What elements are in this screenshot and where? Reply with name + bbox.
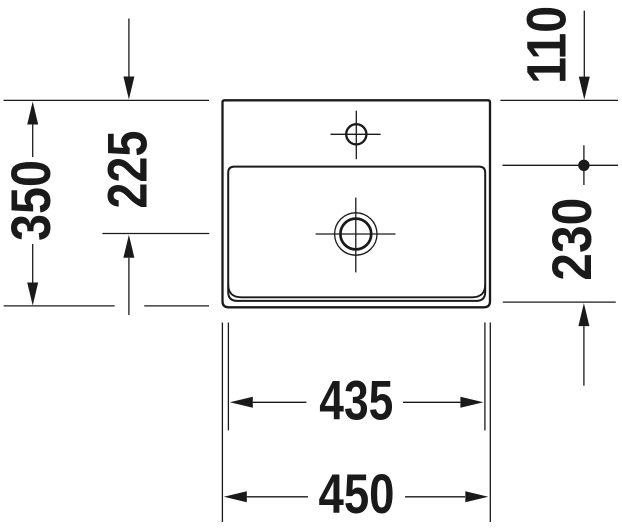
svg-text:450: 450 [319,463,395,525]
svg-text:435: 435 [319,370,393,432]
svg-text:230: 230 [541,198,603,281]
svg-text:225: 225 [97,131,159,209]
svg-text:110: 110 [516,6,578,84]
svg-text:350: 350 [0,160,62,241]
